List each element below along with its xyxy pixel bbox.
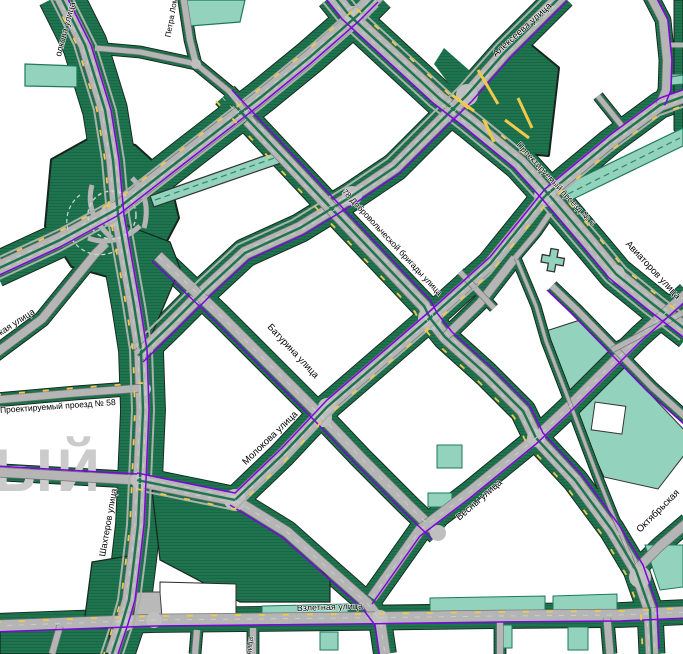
svg-text:улица: улица bbox=[244, 636, 255, 654]
